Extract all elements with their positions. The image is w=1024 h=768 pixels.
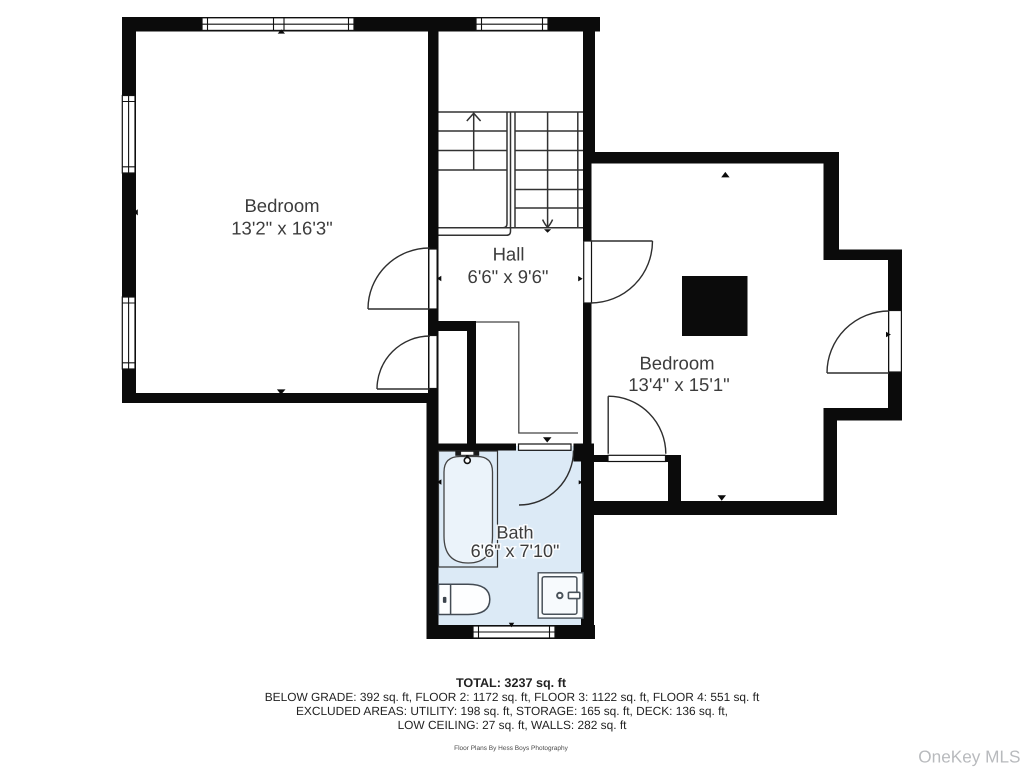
svg-text:BELOW GRADE: 392 sq. ft, FLOOR: BELOW GRADE: 392 sq. ft, FLOOR 2: 1172 s… bbox=[265, 690, 760, 704]
svg-text:OneKey MLS: OneKey MLS bbox=[918, 747, 1020, 767]
svg-text:Bath: Bath bbox=[496, 523, 533, 543]
svg-text:13'2" x 16'3": 13'2" x 16'3" bbox=[231, 218, 332, 239]
svg-text:Hall: Hall bbox=[493, 244, 525, 265]
svg-text:Bedroom: Bedroom bbox=[244, 195, 319, 216]
svg-text:6'6" x 9'6": 6'6" x 9'6" bbox=[468, 266, 549, 287]
svg-text:6'6" x 7'10": 6'6" x 7'10" bbox=[471, 541, 560, 561]
svg-text:TOTAL: 3237 sq. ft: TOTAL: 3237 sq. ft bbox=[456, 676, 567, 690]
svg-text:Bedroom: Bedroom bbox=[639, 353, 714, 374]
svg-text:Floor Plans By Hess Boys Photo: Floor Plans By Hess Boys Photography bbox=[454, 745, 569, 752]
svg-text:EXCLUDED AREAS: UTILITY: 198 s: EXCLUDED AREAS: UTILITY: 198 sq. ft, STO… bbox=[296, 704, 728, 718]
svg-text:13'4" x 15'1": 13'4" x 15'1" bbox=[628, 374, 729, 395]
svg-text:LOW CEILING: 27 sq. ft, WALLS:: LOW CEILING: 27 sq. ft, WALLS: 282 sq. f… bbox=[398, 718, 628, 732]
